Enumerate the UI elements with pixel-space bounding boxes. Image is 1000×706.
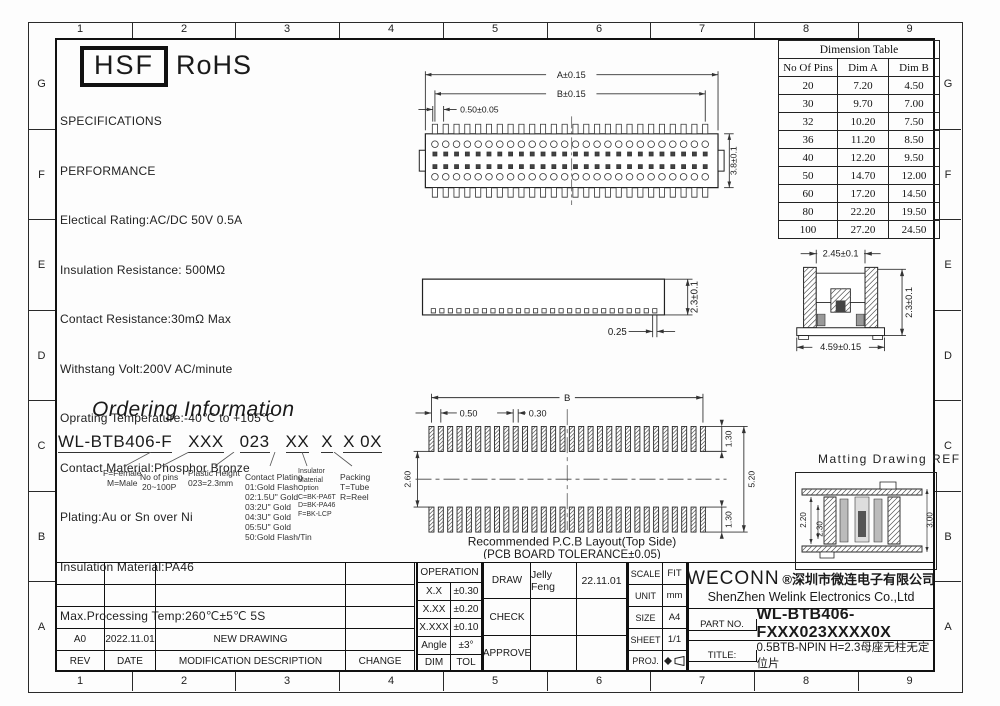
zone-col-label: 6 <box>547 675 651 687</box>
part-segment: XXX <box>188 432 224 453</box>
dim-label-b: B±0.15 <box>557 89 586 99</box>
zone-col-label: 7 <box>650 23 754 35</box>
dim-label-height: 2.3±0.1 <box>689 281 700 313</box>
connector-side-view: 2.3±0.1 0.25 <box>408 250 708 347</box>
dim-label-height: 3.8±0.1 <box>728 146 738 175</box>
table-row: 4012.209.50 <box>779 149 940 167</box>
rev-value: A0 <box>56 629 105 651</box>
dimension-table: Dimension Table No Of Pins Dim A Dim B 2… <box>778 40 940 239</box>
pcb-caption: (PCB BOARD TOLERANCE±0.05) <box>483 549 661 559</box>
tolerance-table: OPERATION X.X±0.30 X.XX±0.20 X.XXX±0.10 … <box>417 562 483 672</box>
sheet-info-table: SCALE FIT UNIT mm SIZE A4 SHEET 1/1 PROJ… <box>628 562 688 672</box>
size-value: A4 <box>663 607 687 629</box>
table-row: 6017.2014.50 <box>779 185 940 203</box>
solder-foot <box>873 336 883 340</box>
dim-label-inner: 2.30 <box>816 521 825 537</box>
rev-change <box>346 629 415 651</box>
dim-label-right: 2.3±0.1 <box>904 287 914 318</box>
zone-col-label: 8 <box>754 675 858 687</box>
table-row: 207.204.50 <box>779 77 940 95</box>
unit-value: mm <box>663 585 687 607</box>
zone-row-label: B <box>935 491 961 582</box>
approval-table: DRAW Jelly Feng 22.11.01 CHECK APPROVE <box>483 562 628 672</box>
dim-label-pitch1: 0.50 <box>460 408 478 418</box>
part-segment: X <box>321 432 333 453</box>
table-row: 3611.208.50 <box>779 131 940 149</box>
scale-label: SCALE <box>629 563 663 585</box>
check-label: CHECK <box>484 599 531 636</box>
company-name-en: ShenZhen Welink Electronics Co.,Ltd <box>708 590 915 604</box>
drawing-sheet: 1 2 3 4 5 6 7 8 9 1 2 3 4 5 6 7 8 9 G F … <box>0 0 1000 706</box>
company-block: WECONN ®深圳市微连电子有限公司 ShenZhen Welink Elec… <box>688 562 935 672</box>
connector-section-view: 2.45±0.1 2.3±0.1 4.59±0.15 <box>748 240 943 359</box>
board-tab <box>820 552 834 558</box>
zone-row-label: B <box>28 491 55 582</box>
spec-line: Withstang Volt:200V AC/minute <box>60 361 390 378</box>
dim-label-outer: 2.20 <box>799 512 808 528</box>
zone-col-label: 9 <box>858 675 961 687</box>
zone-col-label: 5 <box>443 675 547 687</box>
pcb-layout-view: B 0.50 0.30 1.30 5.20 1.30 2.60 Recommen… <box>404 386 764 559</box>
dim-label-gap: 2.60 <box>404 471 413 488</box>
dim-label-pad-bottom: 1.30 <box>723 511 733 528</box>
center-contact <box>858 511 866 537</box>
rohs-logo: RoHS <box>176 50 252 81</box>
unit-label: UNIT <box>629 585 663 607</box>
zone-col-label: 1 <box>28 23 132 35</box>
rev-header: CHANGE <box>346 651 415 672</box>
title-label: TITLE: <box>689 650 757 662</box>
pin-row <box>432 124 708 134</box>
spec-line: Plating:Au or Sn over Ni <box>60 509 390 526</box>
table-row: 8022.2019.50 <box>779 203 940 221</box>
rev-date: 2022.11.01 <box>105 629 156 651</box>
dim-label-pitch2: 0.30 <box>529 408 547 418</box>
dim-label-b: B <box>564 393 570 404</box>
title-value: 0.5BTB-NPIN H=2.3母座无柱无定位片 <box>757 641 934 671</box>
contact <box>874 499 882 542</box>
contact <box>856 314 864 326</box>
draw-date: 22.11.01 <box>577 563 627 599</box>
solder-foot <box>799 336 809 340</box>
zone-row-label: D <box>28 310 55 401</box>
zone-col-label: 7 <box>650 675 754 687</box>
matting-section-view: 2.20 2.30 3.00 <box>796 473 936 569</box>
zone-col-label: 3 <box>235 23 339 35</box>
base-plate <box>797 328 885 336</box>
ordering-leader-lines <box>55 452 405 468</box>
dimension-table-title-row: Dimension Table <box>779 41 940 59</box>
legend-plastic-height: Plastic Height 023=2.3mm <box>188 468 240 488</box>
dimension-table-header-row: No Of Pins Dim A Dim B <box>779 59 940 77</box>
draw-label: DRAW <box>484 563 531 599</box>
dim-label-pitch: 0.50±0.05 <box>460 105 499 115</box>
contact <box>840 499 848 542</box>
matting-drawing-box: 2.20 2.30 3.00 <box>795 472 937 570</box>
dim-label-a: A±0.15 <box>557 70 586 80</box>
spec-line: Insulation Resistance: 500MΩ <box>60 262 390 279</box>
first-angle-projection-icon <box>663 656 686 666</box>
rev-description: NEW DRAWING <box>156 629 346 651</box>
zone-col-label: 4 <box>339 675 443 687</box>
rev-header: REV <box>56 651 105 672</box>
zone-row-label: C <box>935 400 961 491</box>
dim-label-bottom: 4.59±0.15 <box>820 342 861 352</box>
dim-label-span: 5.20 <box>746 471 756 488</box>
part-segment: X 0X <box>343 432 382 453</box>
zone-row-label: G <box>28 38 55 129</box>
revision-table: A0 2022.11.01 NEW DRAWING REV DATE MODIF… <box>55 562 417 672</box>
tolerance-title: OPERATION <box>418 563 482 583</box>
legend-packing: Packing T=Tube R=Reel <box>340 472 370 502</box>
legend-insulator: Insulator Material Option C=BK-PA6T D=BK… <box>298 468 336 519</box>
ordering-part-number: WL-BTB406-FXXX023XXXX 0X <box>58 432 382 452</box>
proj-symbol-cell <box>663 651 687 671</box>
part-no-label: PART NO. <box>689 619 757 631</box>
sheet-label: SHEET <box>629 629 663 651</box>
part-segment: XX <box>286 432 310 453</box>
pin-row <box>432 188 708 198</box>
ordering-title: Ordering Information <box>92 398 295 422</box>
draw-name: Jelly Feng <box>531 563 577 599</box>
pin-row <box>431 309 657 313</box>
rev-header: MODIFICATION DESCRIPTION <box>156 651 346 672</box>
zone-col-label: 2 <box>132 675 236 687</box>
side-tab <box>419 150 425 171</box>
zone-row-label: A <box>935 581 961 672</box>
size-label: SIZE <box>629 607 663 629</box>
zone-col-label: 5 <box>443 23 547 35</box>
zone-col-label: 1 <box>28 675 132 687</box>
pcb-caption: Recommended P.C.B Layout(Top Side) <box>468 534 677 548</box>
dim-label-pin: 0.25 <box>608 327 627 338</box>
legend-pins: No of pins 20~100P <box>140 472 178 492</box>
part-segment: WL-BTB406-F <box>58 432 172 453</box>
sheet-value: 1/1 <box>663 629 687 651</box>
spec-line: Electical Rating:AC/DC 50V 0.5A <box>60 212 390 229</box>
zone-col-label: 9 <box>858 23 961 35</box>
zone-col-label: 6 <box>547 23 651 35</box>
zone-row-label: C <box>28 400 55 491</box>
dim-label-right: 3.00 <box>926 512 935 528</box>
spec-line: PERFORMANCE <box>60 163 390 180</box>
company-logo-text: WECONN <box>689 568 780 589</box>
company-name-cn: ®深圳市微连电子有限公司 <box>782 572 934 587</box>
zone-col-label: 8 <box>754 23 858 35</box>
dim-label-top: 2.45±0.1 <box>823 249 859 259</box>
spec-line: Contact Resistance:30mΩ Max <box>60 311 390 328</box>
zone-row-label: A <box>28 581 55 672</box>
zone-col-label: 2 <box>132 23 236 35</box>
part-segment: 023 <box>240 432 270 453</box>
zone-row-label: F <box>28 129 55 220</box>
connector-top-view: A±0.15 B±0.15 0.50±0.05 3.8±0.1 <box>408 66 738 212</box>
board-tab <box>880 482 896 489</box>
rev-header: DATE <box>105 651 156 672</box>
zone-col-label: 4 <box>339 23 443 35</box>
legend-gender: F=Female M=Male <box>103 468 142 488</box>
zone-row-label: E <box>28 219 55 310</box>
table-row: 10027.2024.50 <box>779 221 940 239</box>
matting-title: Matting Drawing REF <box>818 452 961 466</box>
part-no-value: WL-BTB406-FXXX023XXXX0X <box>757 609 934 641</box>
contact <box>817 314 825 326</box>
zone-col-label: 3 <box>235 675 339 687</box>
table-row: 3210.207.50 <box>779 113 940 131</box>
table-row: 309.707.00 <box>779 95 940 113</box>
table-row: 5014.7012.00 <box>779 167 940 185</box>
company-name-line: WECONN ®深圳市微连电子有限公司 <box>689 568 934 590</box>
scale-value: FIT <box>663 563 687 585</box>
spec-line: SPECIFICATIONS <box>60 113 390 130</box>
dim-label-pad-top: 1.30 <box>723 430 733 447</box>
center-contact <box>836 300 846 312</box>
approve-label: APPROVE <box>484 636 531 671</box>
side-tab <box>718 150 724 171</box>
proj-label: PROJ. <box>629 651 663 671</box>
